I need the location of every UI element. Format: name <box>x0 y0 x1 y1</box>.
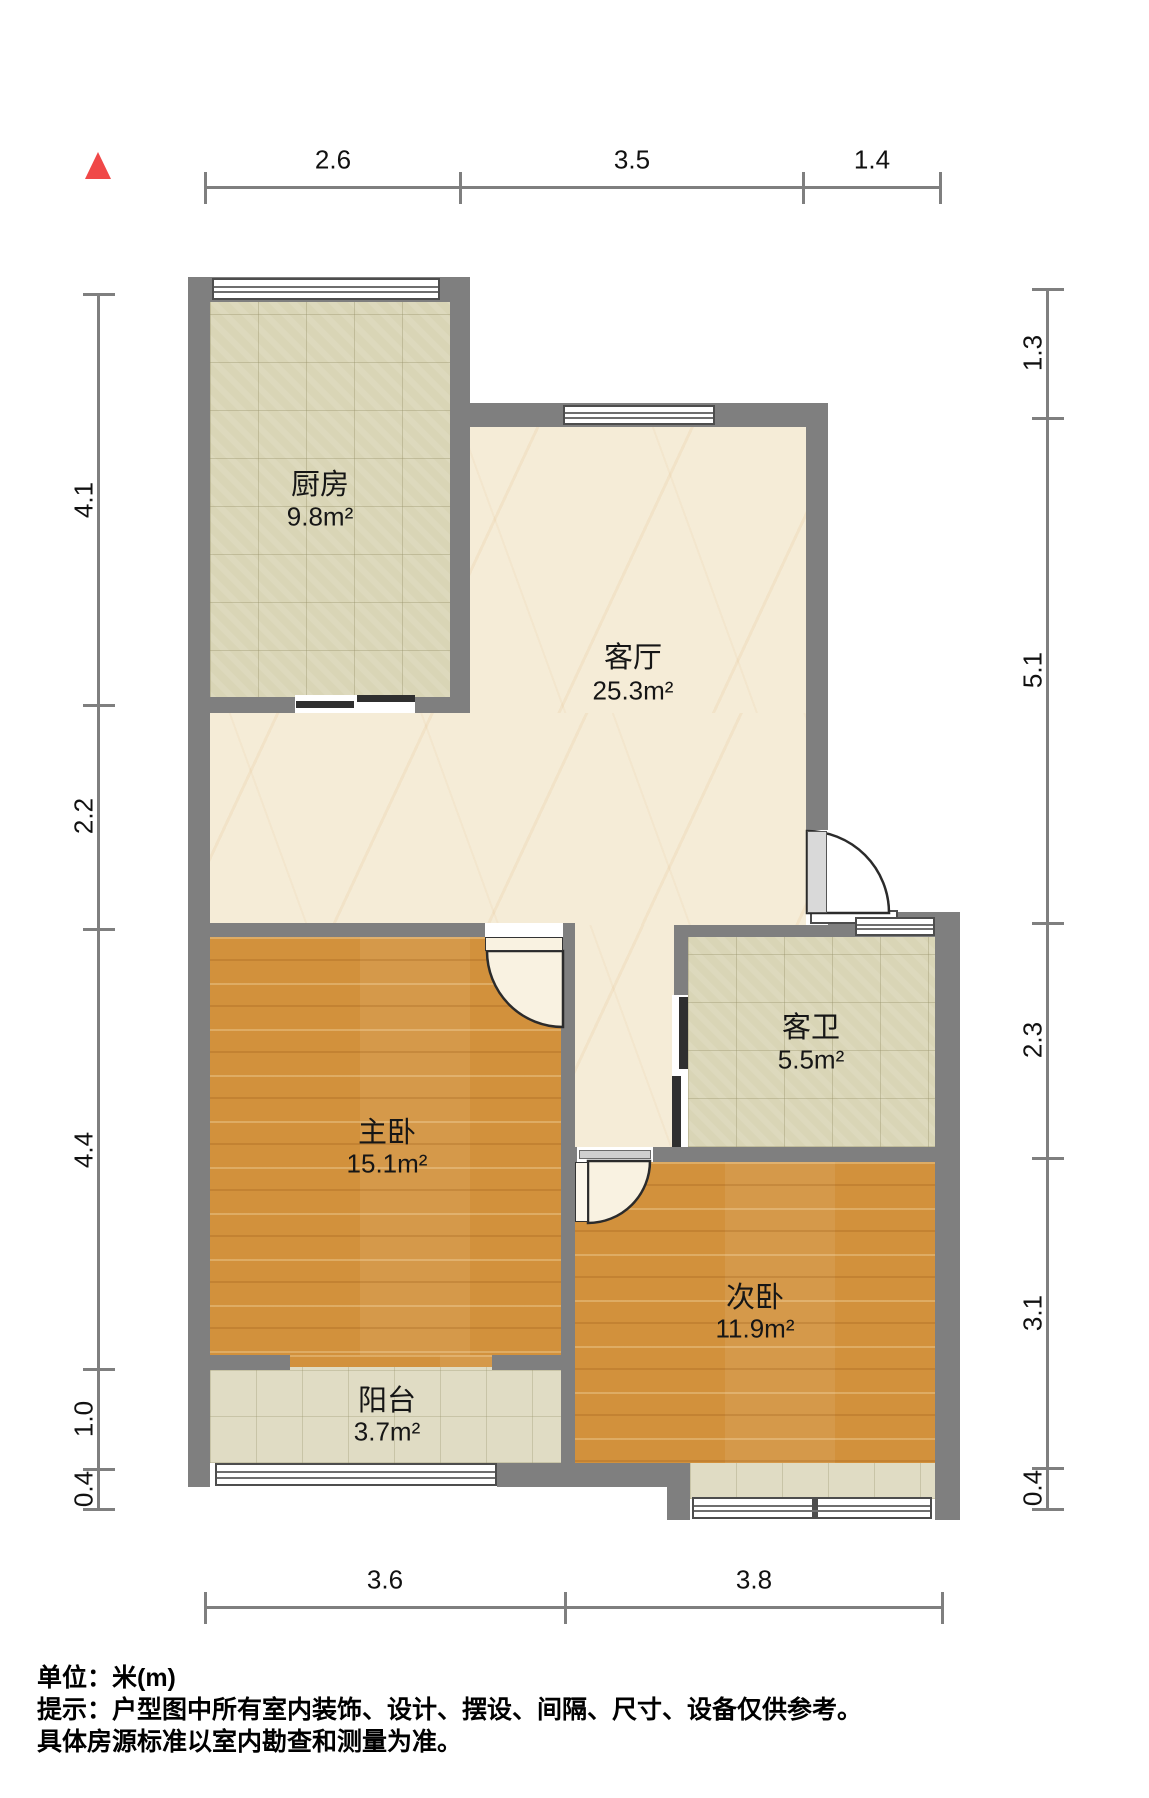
dim-tick <box>459 172 462 204</box>
balcony-window <box>215 1463 497 1486</box>
hallway-floor <box>575 925 674 1149</box>
dim-line-top <box>205 186 942 189</box>
living-floor-main <box>210 713 806 925</box>
wall-master-top-left <box>188 923 485 937</box>
kitchen-window <box>212 278 440 300</box>
bay-window-floor <box>690 1463 935 1499</box>
wall-kitchen-bottom-left <box>188 697 295 713</box>
dim-label-left: 4.1 <box>69 482 100 518</box>
living-room-area: 25.3m² <box>593 676 674 707</box>
wall-second-bedroom-left <box>561 1162 575 1463</box>
dim-label-right: 3.1 <box>1018 1295 1049 1331</box>
dim-tick <box>564 1592 567 1624</box>
second-bedroom-label: 次卧 <box>726 1274 784 1316</box>
dim-tick <box>204 1592 207 1624</box>
kitchen-area: 9.8m² <box>287 502 353 533</box>
footer-unit-note: 单位：米(m) <box>37 1658 176 1694</box>
bathroom-sliding-door-panel <box>679 997 688 1069</box>
master-door-opening <box>485 923 563 937</box>
dim-label-left: 1.0 <box>69 1401 100 1437</box>
bathroom-sliding-door-panel <box>672 1076 681 1147</box>
master-bedroom-area: 15.1m² <box>347 1149 428 1180</box>
dim-tick <box>1032 1157 1064 1160</box>
dim-label-bottom: 3.6 <box>367 1565 403 1596</box>
bay-window <box>692 1497 932 1519</box>
dim-label-top: 1.4 <box>854 145 890 176</box>
wall-master-bottom-left <box>210 1355 290 1370</box>
dim-label-right: 0.4 <box>1018 1470 1049 1506</box>
dim-label-right: 5.1 <box>1018 652 1049 688</box>
wall-right-outer <box>935 912 960 1520</box>
balcony-label: 阳台 <box>358 1377 416 1419</box>
dim-tick <box>802 172 805 204</box>
second-bedroom-area: 11.9m² <box>716 1314 795 1345</box>
wall-bay-left <box>667 1487 690 1520</box>
wall-kitchen-right <box>450 277 470 713</box>
bathroom-label: 客卫 <box>782 1004 840 1046</box>
north-arrow-icon <box>85 152 111 179</box>
dim-tick <box>83 928 115 931</box>
dim-label-right: 2.3 <box>1018 1022 1049 1058</box>
dim-tick <box>204 172 207 204</box>
entry-door-leaf <box>807 831 827 913</box>
wall-bottom-between-balcony-bay <box>497 1463 690 1487</box>
dim-tick <box>1032 288 1064 291</box>
dim-label-left: 2.2 <box>69 798 100 834</box>
kitchen-sliding-door-panel <box>357 695 415 702</box>
dim-tick <box>83 1508 115 1511</box>
dim-label-left: 4.4 <box>69 1132 100 1168</box>
dim-label-top: 3.5 <box>614 145 650 176</box>
wall-living-right <box>806 403 828 830</box>
dim-label-bottom: 3.8 <box>736 1565 772 1596</box>
dim-tick <box>1032 417 1064 420</box>
wall-left-outer <box>188 277 210 1487</box>
master-door-leaf <box>485 937 563 951</box>
wall-bathroom-left-upper <box>674 937 688 995</box>
bay-window-mullion <box>812 1499 818 1517</box>
dim-tick <box>83 1368 115 1371</box>
master-bedroom-label: 主卧 <box>358 1109 416 1151</box>
dim-tick <box>1032 1508 1064 1511</box>
kitchen-sliding-door-panel <box>296 701 354 708</box>
dim-label-left: 0.4 <box>69 1471 100 1507</box>
footer-tip-note: 提示：户型图中所有室内装饰、设计、摆设、间隔、尺寸、设备仅供参考。 <box>37 1690 862 1726</box>
second-door-leaf <box>575 1162 588 1222</box>
dim-label-top: 2.6 <box>315 145 351 176</box>
dim-line-left <box>97 294 100 1510</box>
second-door-frame <box>579 1150 651 1159</box>
dim-tick <box>941 1592 944 1624</box>
dim-tick <box>939 172 942 204</box>
wall-hallway-left <box>561 923 575 1162</box>
footer-tip-note-2: 具体房源标准以室内勘查和测量为准。 <box>37 1722 462 1758</box>
balcony-area: 3.7m² <box>354 1417 420 1448</box>
dim-tick <box>83 704 115 707</box>
kitchen-label: 厨房 <box>291 461 349 503</box>
wall-kitchen-bottom-right <box>415 697 470 713</box>
floor-plan-canvas: 厨房 9.8m² 客厅 25.3m² 客卫 5.5m² 主卧 15.1m² 次卧… <box>0 0 1149 1798</box>
dim-line-bottom <box>205 1606 944 1609</box>
dim-label-right: 1.3 <box>1018 335 1049 371</box>
living-room-window <box>563 405 715 425</box>
dim-tick <box>83 293 115 296</box>
living-room-label: 客厅 <box>604 634 662 676</box>
dim-tick <box>1032 922 1064 925</box>
entry-side-window <box>855 917 935 936</box>
bathroom-area: 5.5m² <box>778 1045 844 1076</box>
wall-master-bottom-right <box>492 1355 575 1370</box>
